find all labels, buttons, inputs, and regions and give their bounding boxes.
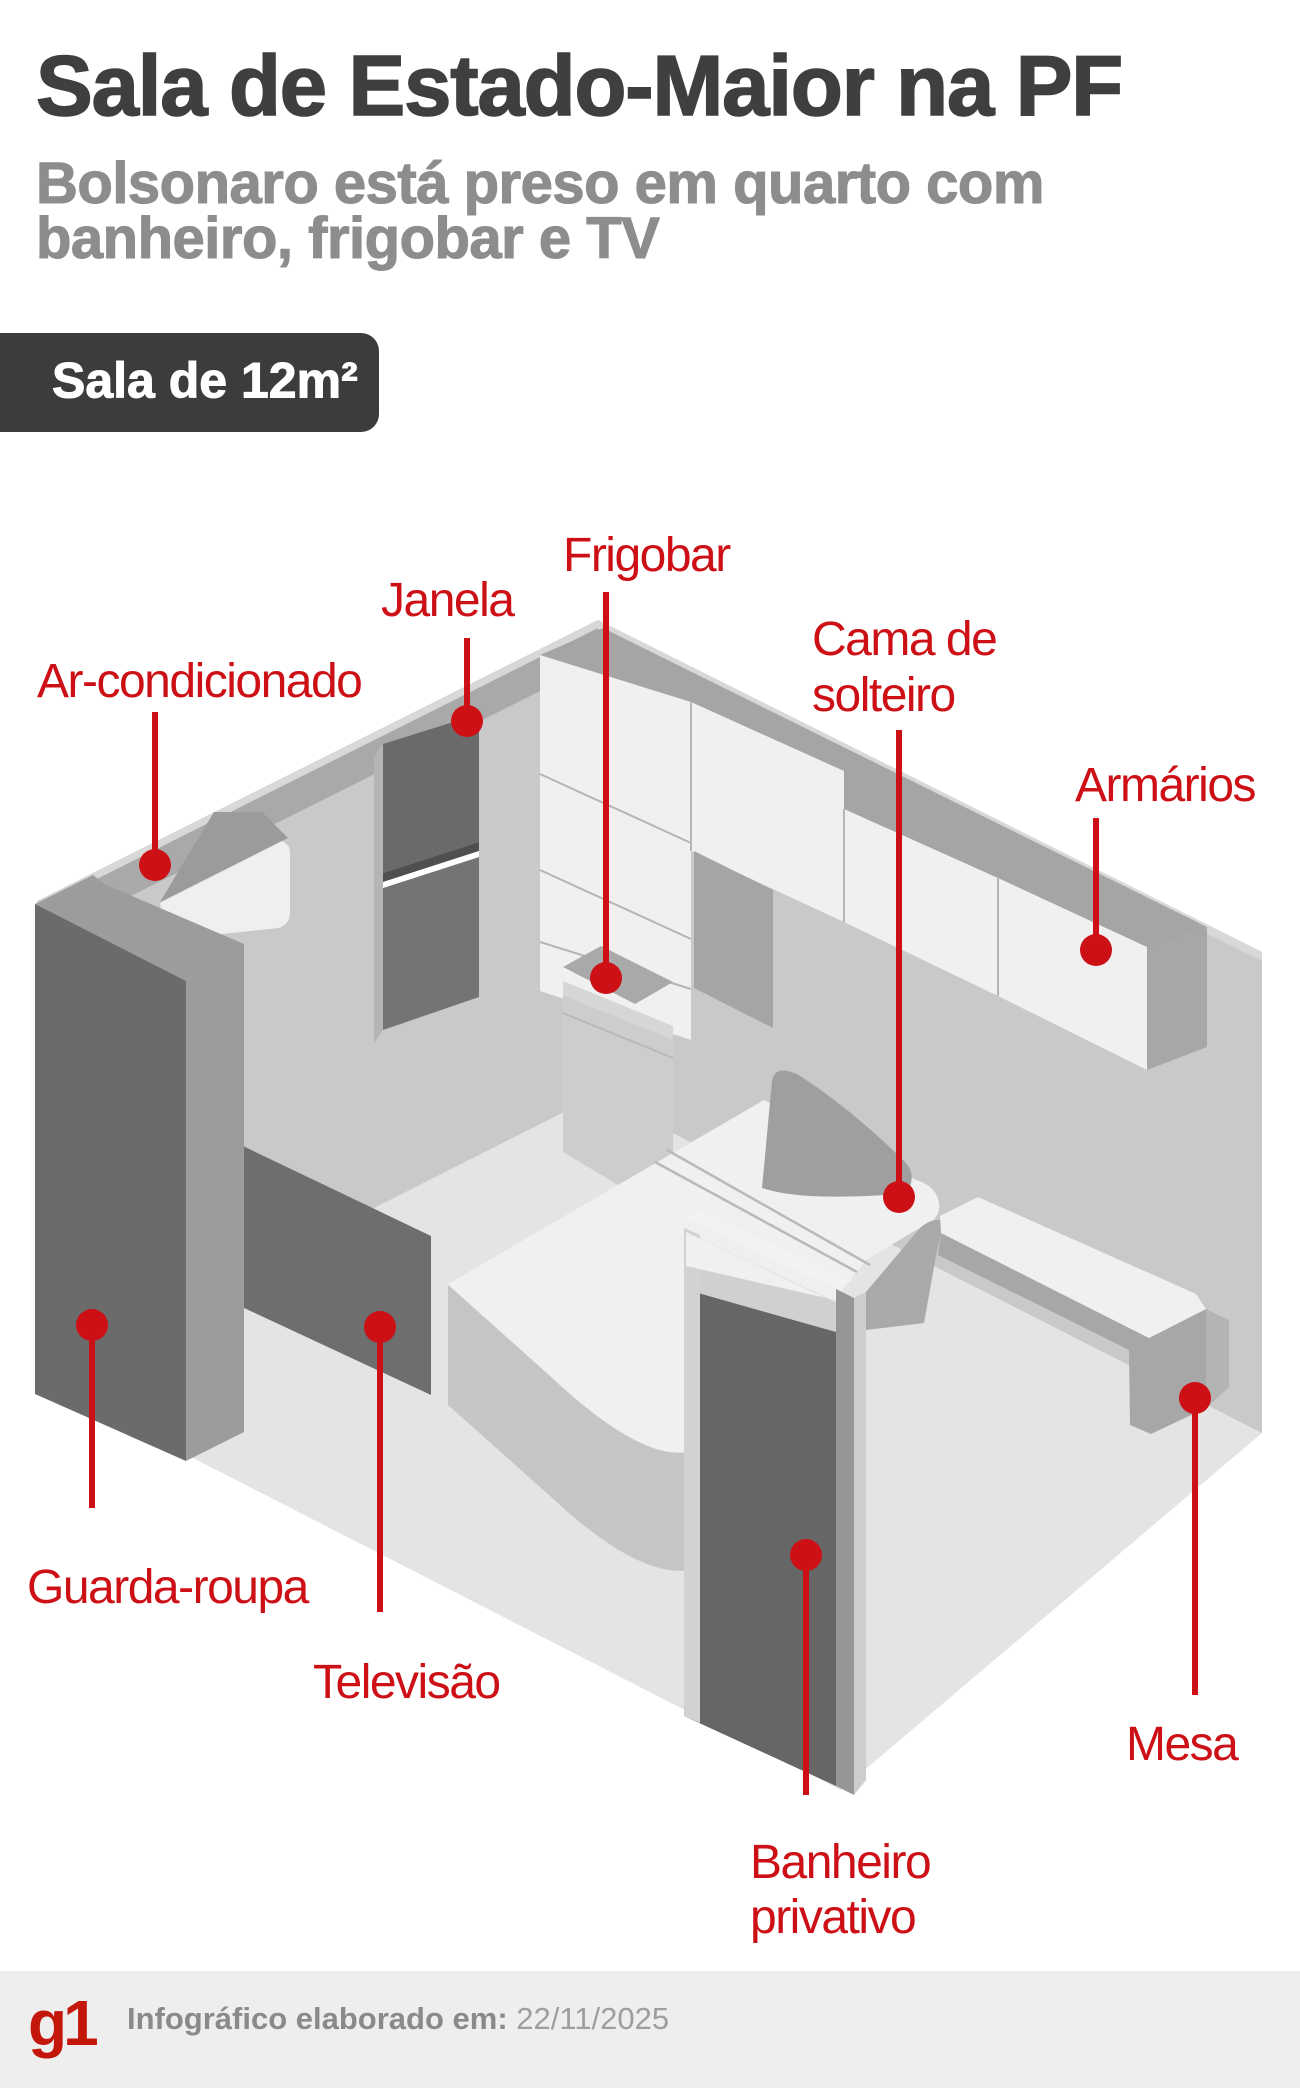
svg-text:Cama de: Cama de xyxy=(812,613,996,666)
svg-text:privativo: privativo xyxy=(750,1891,915,1944)
svg-text:Janela: Janela xyxy=(381,574,515,627)
svg-text:solteiro: solteiro xyxy=(812,669,955,722)
svg-text:Televisão: Televisão xyxy=(313,1656,500,1709)
svg-text:Armários: Armários xyxy=(1075,759,1256,812)
svg-text:Guarda-roupa: Guarda-roupa xyxy=(27,1561,310,1614)
svg-text:Mesa: Mesa xyxy=(1126,1718,1239,1771)
svg-text:Banheiro: Banheiro xyxy=(750,1836,930,1889)
svg-text:Frigobar: Frigobar xyxy=(563,529,731,582)
svg-text:Ar-condicionado: Ar-condicionado xyxy=(37,655,361,708)
